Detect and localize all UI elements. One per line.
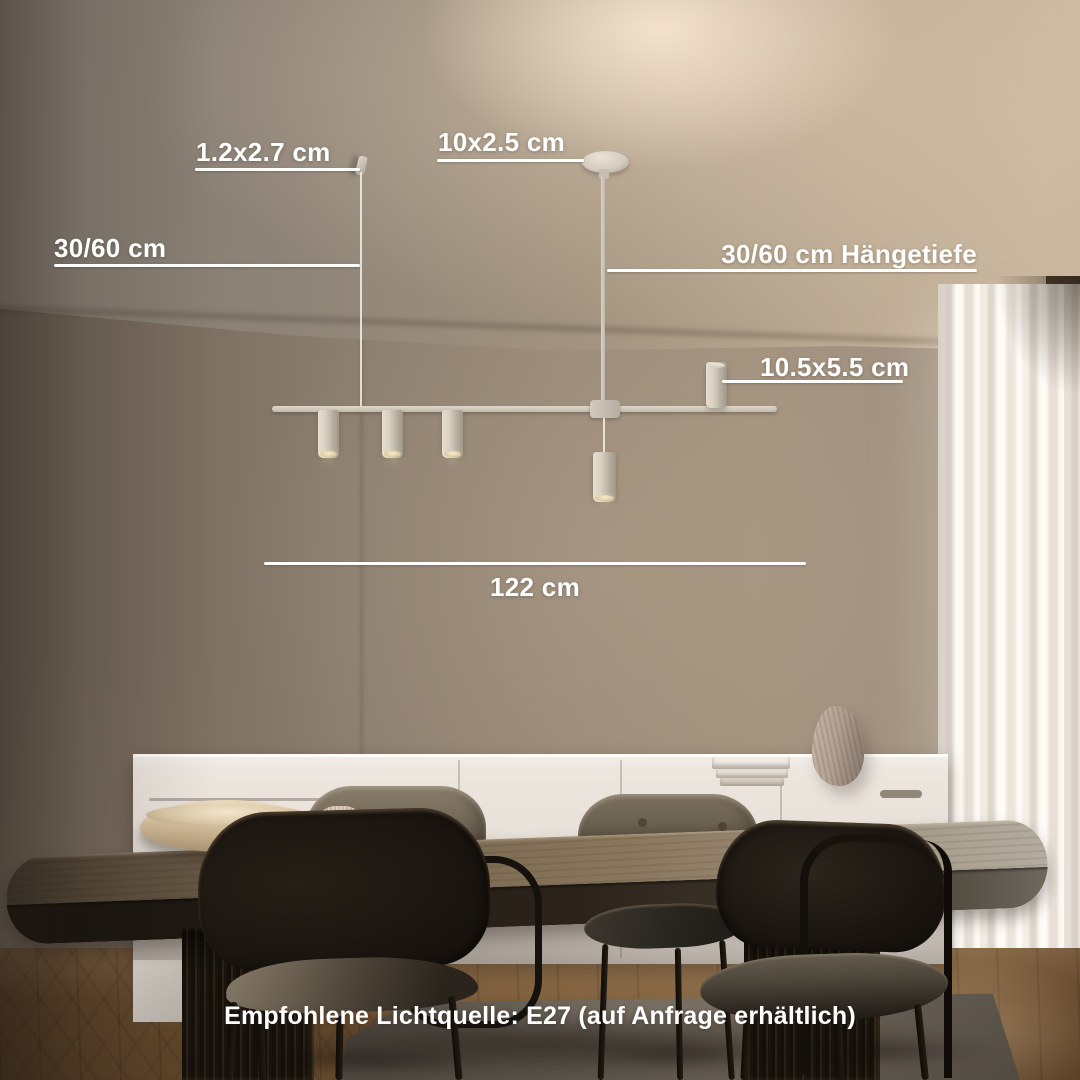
lamp-horizontal-bar: [272, 406, 777, 412]
dimension-line-canopy: [437, 159, 584, 162]
dimension-line-cable-length: [54, 264, 360, 267]
lamp-uplight-cylinder: [706, 362, 727, 408]
dimension-line-spot: [722, 380, 903, 383]
upholstery-button: [718, 822, 727, 831]
dimension-label-canopy: 10x2.5 cm: [438, 127, 565, 158]
spot-lens: [444, 451, 461, 457]
light-source-recommendation: Empfohlene Lichtquelle: E27 (auf Anfrage…: [0, 1002, 1080, 1031]
product-scene: 1.2x2.7 cm 10x2.5 cm 30/60 cm 30/60 cm H…: [0, 0, 1080, 1080]
dimension-label-spot: 10.5x5.5 cm: [760, 352, 909, 383]
black-chair-backrest: [196, 806, 492, 972]
pendant-cable: [603, 418, 605, 454]
book: [712, 757, 790, 769]
dimension-label-hanging-depth: 30/60 cm Hängetiefe: [607, 239, 977, 270]
dimension-line-total-width: [264, 562, 806, 565]
upholstery-button: [638, 818, 647, 827]
curtain-top-shadow: [995, 276, 1080, 396]
dimension-line-hanging-depth: [607, 269, 977, 272]
lamp-connector-sleeve: [590, 400, 620, 418]
lamp-spot-cylinder: [442, 410, 463, 458]
book: [716, 769, 788, 778]
lamp-stem-rod: [601, 176, 605, 408]
book: [720, 778, 784, 786]
spot-lens: [384, 451, 401, 457]
dimension-label-cable-mount: 1.2x2.7 cm: [196, 137, 331, 168]
dimension-label-cable-length: 30/60 cm: [54, 233, 166, 264]
suspension-cable: [360, 172, 362, 408]
ceiling: [0, 0, 1080, 362]
lamp-spot-cylinder: [318, 410, 339, 458]
dimension-line-cable-mount: [195, 168, 360, 171]
lamp-spot-cylinder: [382, 410, 403, 458]
spot-lens: [595, 495, 614, 501]
lamp-pendant-cylinder: [593, 452, 616, 502]
sheer-curtain: [938, 284, 1080, 1054]
dimension-label-total-width: 122 cm: [264, 572, 806, 603]
uplight-top: [708, 363, 725, 368]
spot-lens: [320, 451, 337, 457]
